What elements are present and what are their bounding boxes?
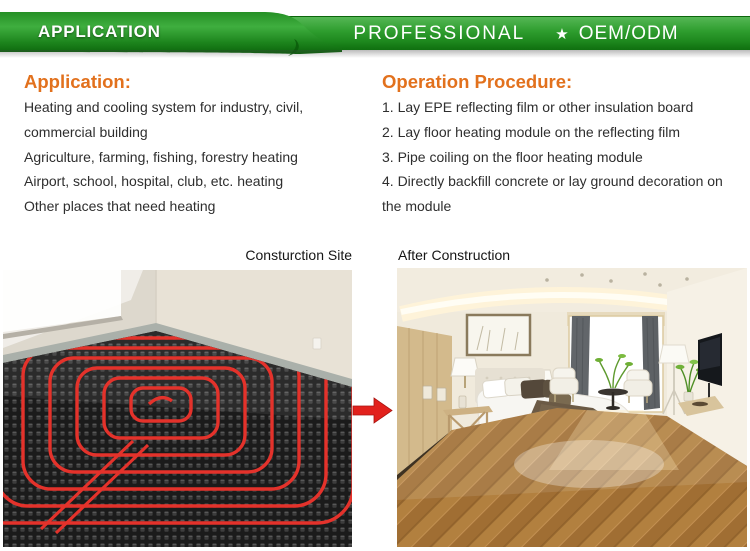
after-construction-photo	[397, 268, 747, 547]
shelf-decor	[692, 402, 708, 406]
professional-label: PROFESSIONAL	[353, 23, 525, 45]
wall-outlet	[313, 338, 321, 349]
after-construction-caption: After Construction	[398, 247, 510, 263]
application-line: Other places that need heating	[24, 194, 354, 219]
construction-site-caption: Consturction Site	[180, 247, 352, 263]
procedure-heading: Operation Procedure:	[382, 71, 572, 93]
procedure-step: 4. Directly backfill concrete or lay gro…	[382, 169, 736, 219]
wall-artwork	[467, 315, 530, 355]
bedroom-illustration	[397, 268, 747, 547]
banner-right-bar: PROFESSIONAL ★ OEM/ODM	[282, 16, 750, 50]
application-banner-label: APPLICATION	[38, 22, 161, 42]
application-line: Airport, school, hospital, club, etc. he…	[24, 169, 354, 194]
procedure-step: 3. Pipe coiling on the floor heating mod…	[382, 145, 736, 170]
arrow-right-icon	[352, 397, 394, 424]
procedure-step: 1. Lay EPE reflecting film or other insu…	[382, 95, 736, 120]
application-line: Heating and cooling system for industry,…	[24, 95, 354, 145]
star-icon: ★	[555, 25, 568, 43]
construction-site-photo	[3, 270, 352, 547]
procedure-step: 2. Lay floor heating module on the refle…	[382, 120, 736, 145]
header-banner: PROFESSIONAL ★ OEM/ODM APPLICA	[0, 0, 750, 60]
banner-shadow	[0, 50, 750, 58]
product-description-page: { "banner": { "tab_label": "APPLICATION"…	[0, 0, 750, 551]
procedure-steps: 1. Lay EPE reflecting film or other insu…	[382, 95, 736, 219]
application-line: Agriculture, farming, fishing, forestry …	[24, 145, 354, 170]
oem-odm-label: OEM/ODM	[579, 23, 679, 45]
construction-site-illustration	[3, 270, 352, 547]
application-text: Heating and cooling system for industry,…	[24, 95, 354, 219]
oem-group: ★ OEM/ODM	[555, 23, 678, 45]
application-heading: Application:	[24, 71, 131, 93]
